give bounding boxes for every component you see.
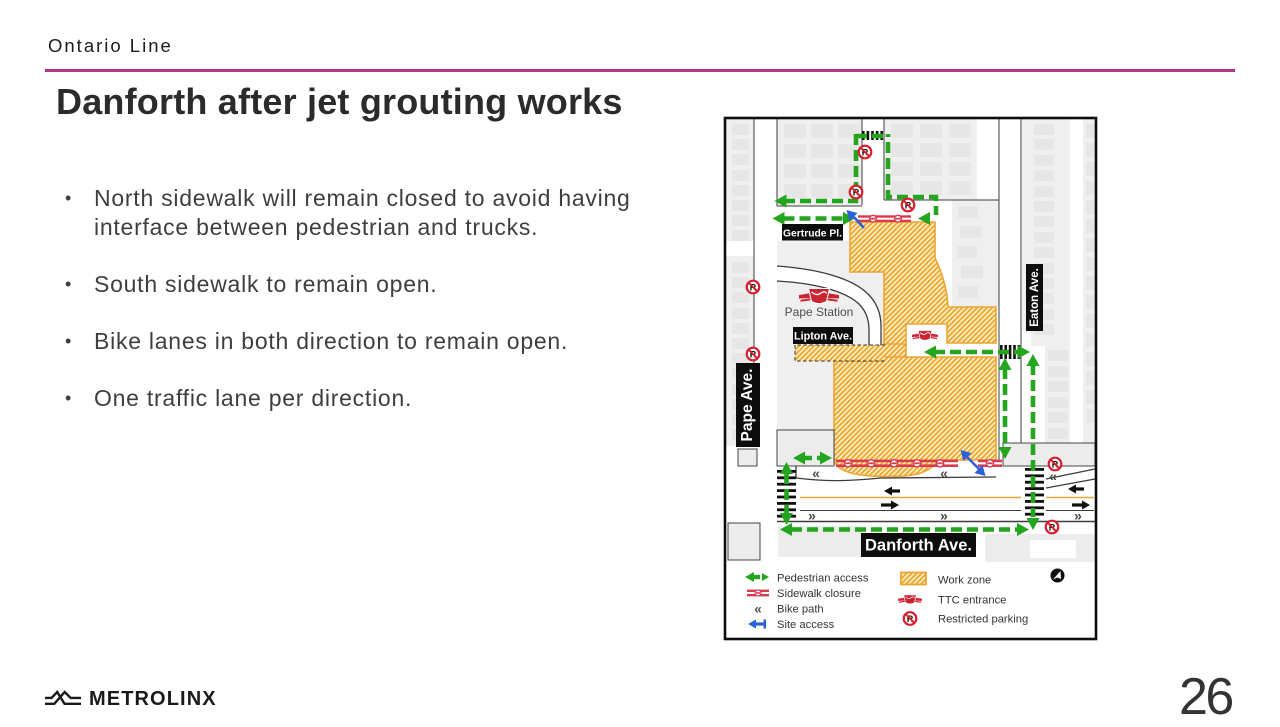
svg-text:Eaton Ave.: Eaton Ave. [1029, 268, 1041, 327]
svg-text:Restricted parking: Restricted parking [938, 614, 1028, 626]
svg-text:Work zone: Work zone [938, 575, 991, 587]
svg-text:Gertrude Pl.: Gertrude Pl. [783, 228, 842, 239]
svg-text:Site access: Site access [777, 619, 835, 631]
svg-text:«: « [754, 602, 762, 617]
svg-text:TTC entrance: TTC entrance [938, 595, 1006, 607]
svg-text:METROLINX: METROLINX [89, 688, 217, 710]
svg-text:Bike path: Bike path [777, 604, 824, 616]
svg-text:Pedestrian access: Pedestrian access [777, 573, 869, 585]
svg-text:Pape Station: Pape Station [785, 305, 854, 319]
svg-text:Sidewalk closure: Sidewalk closure [777, 588, 861, 600]
svg-text:Danforth Ave.: Danforth Ave. [865, 537, 972, 555]
svg-text:Pape Ave.: Pape Ave. [739, 369, 756, 442]
svg-text:Lipton Ave.: Lipton Ave. [794, 331, 852, 343]
